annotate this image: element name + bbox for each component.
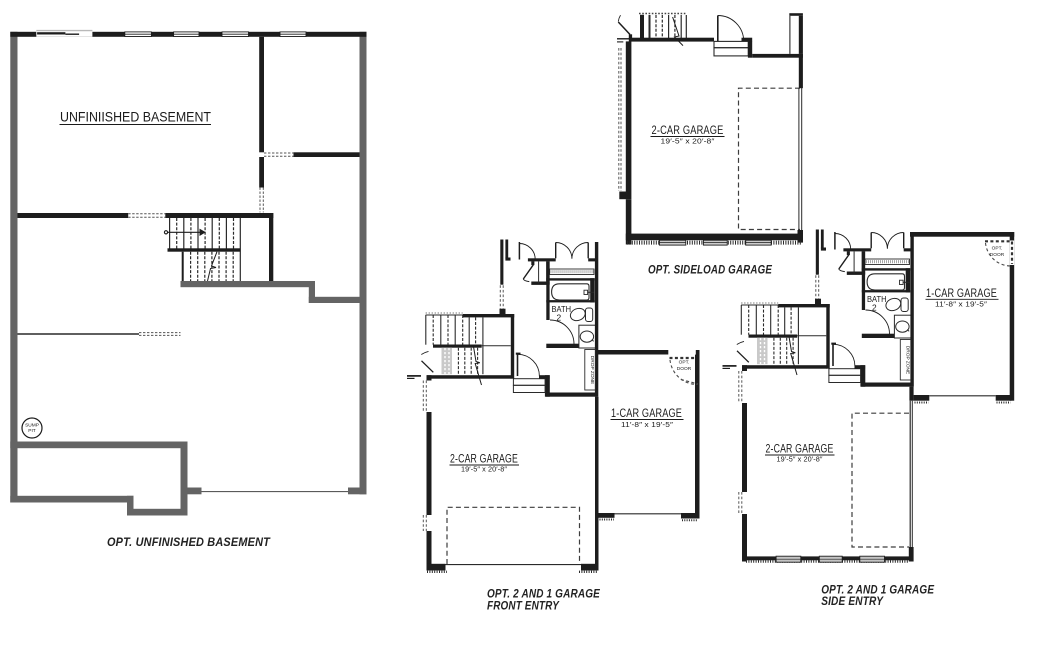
svg-text:OPT.: OPT. <box>992 246 1003 252</box>
svg-text:2-CAR GARAGE: 2-CAR GARAGE <box>652 125 724 137</box>
svg-text:OPT. SIDELOAD GARAGE: OPT. SIDELOAD GARAGE <box>648 263 773 277</box>
svg-text:11′-8″ x 19′-5″: 11′-8″ x 19′-5″ <box>621 420 673 429</box>
svg-text:OPT. UNFINISHED BASEMENT: OPT. UNFINISHED BASEMENT <box>107 535 271 549</box>
svg-text:11′-8″ x 19′-5″: 11′-8″ x 19′-5″ <box>935 300 987 309</box>
svg-text:DOOR: DOOR <box>677 366 692 372</box>
svg-text:DROP ZONE: DROP ZONE <box>589 356 595 384</box>
svg-text:19′-5″ x 20′-8″: 19′-5″ x 20′-8″ <box>661 137 715 146</box>
svg-text:2: 2 <box>557 313 562 323</box>
svg-text:19′-5″ x 20′-8″: 19′-5″ x 20′-8″ <box>461 465 507 474</box>
svg-text:SUMP: SUMP <box>25 423 39 429</box>
svg-text:SIDE ENTRY: SIDE ENTRY <box>821 594 884 608</box>
svg-text:UNFINIISHED BASEMENT: UNFINIISHED BASEMENT <box>60 110 211 125</box>
svg-text:OPT.: OPT. <box>679 360 690 366</box>
svg-text:1-CAR GARAGE: 1-CAR GARAGE <box>611 408 682 420</box>
svg-text:FRONT ENTRY: FRONT ENTRY <box>487 598 560 612</box>
svg-text:PIT: PIT <box>28 428 36 434</box>
svg-text:BATH: BATH <box>552 304 572 314</box>
svg-text:1-CAR GARAGE: 1-CAR GARAGE <box>926 288 997 300</box>
svg-text:DOOR: DOOR <box>990 252 1005 258</box>
